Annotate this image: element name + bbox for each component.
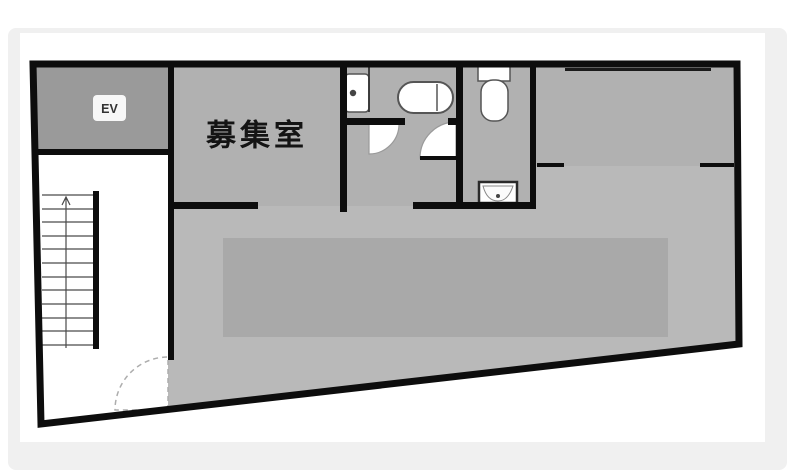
wall-segment bbox=[33, 149, 174, 155]
wall-segment bbox=[340, 64, 347, 212]
wall-segment bbox=[413, 202, 535, 209]
floorplan-image: EV 募集室 bbox=[0, 0, 787, 470]
wall-segment bbox=[168, 64, 174, 360]
wall-stub bbox=[700, 163, 734, 167]
toilet-tank bbox=[478, 66, 510, 81]
hand-basin-drain bbox=[496, 194, 500, 198]
toilet-bowl bbox=[481, 80, 508, 121]
wall-segment bbox=[343, 118, 405, 125]
bathtub-icon bbox=[398, 82, 453, 113]
sink-basin bbox=[345, 74, 369, 112]
inner-floor-zone bbox=[223, 238, 668, 337]
vacant-room-label: 募集室 bbox=[205, 119, 308, 153]
wall-stub bbox=[537, 163, 564, 167]
toilet-icon bbox=[478, 66, 510, 121]
wall-segment bbox=[530, 64, 536, 209]
stair-stringer bbox=[93, 191, 99, 349]
elevator-label-text: EV bbox=[101, 102, 118, 116]
door-leaf bbox=[420, 156, 456, 160]
window-line bbox=[565, 68, 711, 71]
wall-segment bbox=[456, 64, 463, 209]
bathtub-body bbox=[398, 82, 453, 113]
hand-basin-icon bbox=[479, 182, 517, 203]
wall-segment bbox=[448, 118, 463, 125]
sink-faucet bbox=[350, 90, 356, 96]
elevator-label: EV bbox=[93, 95, 126, 121]
floorplan-page: EV 募集室 bbox=[0, 0, 787, 470]
room-upper-right bbox=[535, 66, 737, 166]
wall-segment bbox=[171, 202, 258, 209]
